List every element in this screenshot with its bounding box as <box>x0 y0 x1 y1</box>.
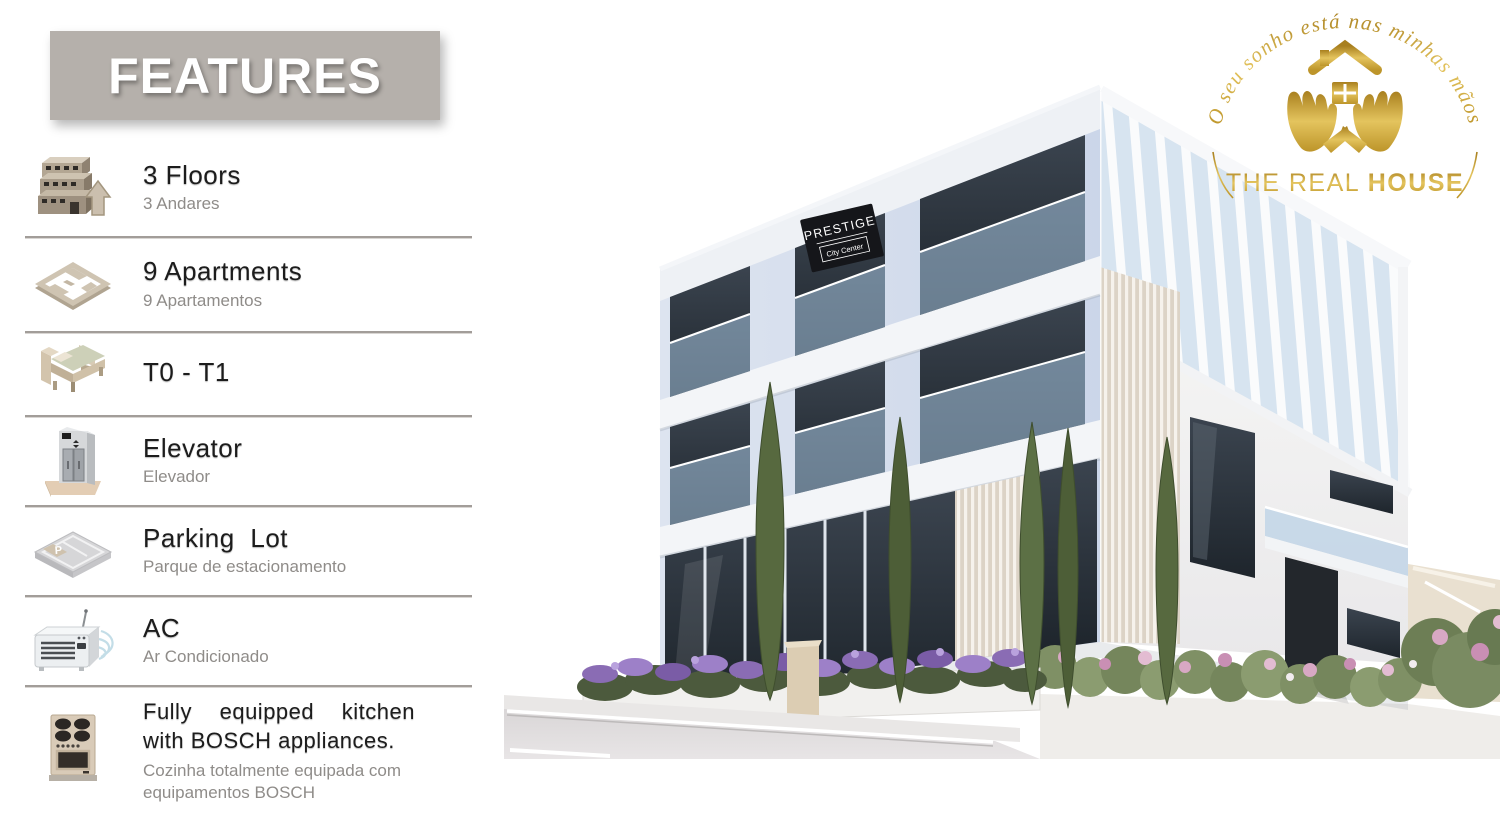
terrain-ground <box>1040 694 1500 759</box>
feature-title: Elevator <box>143 434 242 464</box>
feature-title: AC <box>143 614 269 644</box>
logo-title: THE REAL HOUSE <box>1226 169 1464 197</box>
feature-subtitle: Ar Condicionado <box>143 646 269 668</box>
the-real-house-logo: O seu sonho está nas minhas mãos THE REA… <box>1195 6 1495 206</box>
feature-subtitle: 9 Apartamentos <box>143 290 302 312</box>
feature-subtitle: Elevador <box>143 466 242 488</box>
divider <box>25 685 472 688</box>
feature-title: Fully equipped kitchen with BOSCH applia… <box>143 697 415 755</box>
parking-icon: P <box>25 516 120 586</box>
feature-row-kitchen: Fully equipped kitchen with BOSCH applia… <box>25 697 475 824</box>
ac-icon <box>25 605 120 677</box>
feature-subtitle: Parque de estacionamento <box>143 556 346 578</box>
gate-pillar <box>787 644 819 722</box>
feature-title: 9 Apartments <box>143 257 302 287</box>
svg-text:P: P <box>54 545 62 557</box>
feature-title: 3 Floors <box>143 161 241 191</box>
feature-title: Parking Lot <box>143 524 346 554</box>
feature-row-ac: AC Ar Condicionado <box>25 597 475 685</box>
page-title: FEATURES <box>108 47 382 105</box>
feature-row-typology: T0 - T1 <box>25 333 475 415</box>
stove-icon <box>25 697 120 785</box>
feature-row-parking: P Parking Lot Parque de estacionamento <box>25 507 475 595</box>
features-header: FEATURES <box>50 31 440 120</box>
elevator-icon <box>25 423 120 499</box>
floorplan-icon <box>25 250 120 320</box>
feature-row-apartments: 9 Apartments 9 Apartamentos <box>25 238 475 331</box>
feature-subtitle: Cozinha totalmente equipada com equipame… <box>143 760 428 804</box>
slide: FEATURES <box>0 0 1500 824</box>
feature-subtitle: 3 Andares <box>143 193 241 215</box>
feature-row-floors: 3 Floors 3 Andares <box>25 140 475 236</box>
logo-tagline: O seu sonho está nas minhas mãos <box>1202 9 1488 127</box>
feature-row-elevator: Elevator Elevador <box>25 417 475 505</box>
feature-title: T0 - T1 <box>143 358 230 388</box>
hands-house-icon <box>1287 46 1403 153</box>
building-floors-icon <box>25 149 120 227</box>
bed-icon <box>25 337 120 411</box>
